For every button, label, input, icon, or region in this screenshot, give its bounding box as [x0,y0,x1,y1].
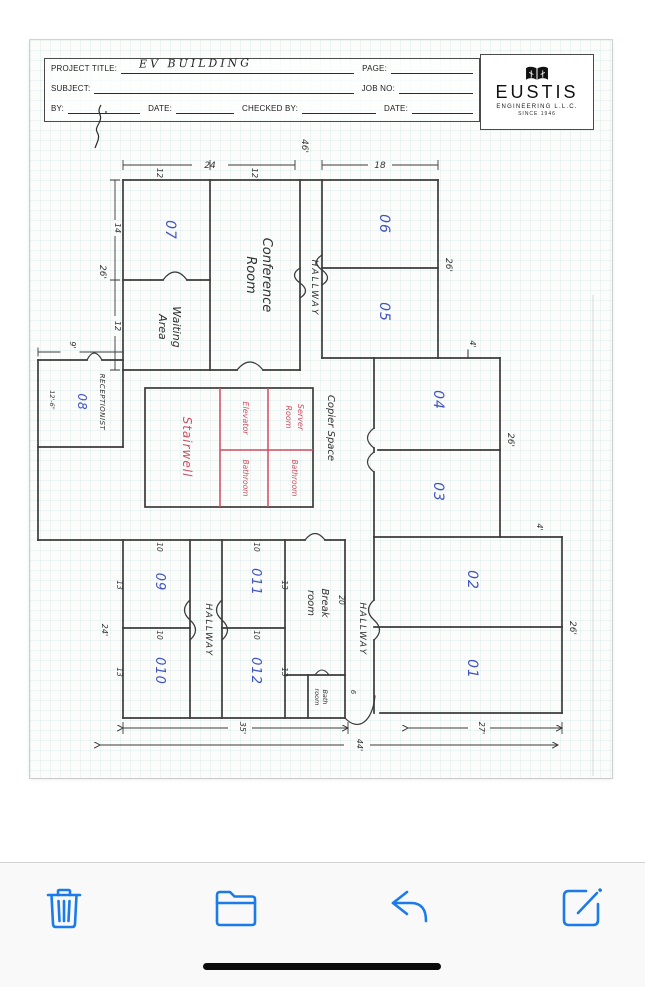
room-011-label: 011 [248,568,263,596]
walls [38,180,562,724]
dim-20: 20 [337,595,346,605]
room-012-label: 012 [248,657,263,685]
dim-13b: 13 [115,667,124,677]
dim-4a: 4' [468,340,477,347]
conference-room-label-1: Conference [259,238,274,313]
dim-26-left: 26' [97,265,107,279]
document-photo[interactable]: PROJECT TITLE: EV BUILDING PAGE: SUBJECT… [30,40,612,778]
trash-icon [42,883,86,931]
room-06-label: 06 [376,214,392,234]
room-01-label: 01 [464,659,480,679]
conference-room-label-2: Room [243,256,258,294]
bath-room-label-2: room [313,689,321,706]
home-indicator[interactable] [203,963,441,970]
receptionist-label: RECEPTIONIST [98,374,106,431]
toolbar-icons [0,875,645,939]
room-07-label: 07 [162,220,178,240]
hallway-right-label: HALLWAY [357,602,367,655]
dim-13a: 13 [115,580,124,590]
reply-button[interactable] [383,879,435,935]
room-02-label: 02 [464,570,480,590]
dim-12a: 12 [155,168,164,178]
waiting-area-label-1: Waiting [170,306,183,347]
dim-26-0605: 26' [443,258,453,272]
dim-12c: 12 [113,321,122,331]
dim-35: 35' [238,722,247,734]
dim-4b: 4' [535,523,544,530]
ios-document-viewer: { "photo": { "title_block": { "project_t… [0,0,645,986]
markup-button[interactable] [555,879,607,935]
dim-26-0403: 26' [505,433,515,447]
room-05-label: 05 [376,302,392,322]
dim-18: 18 [374,161,386,171]
bath-room-label-1: Bath [321,689,329,704]
room-04-label: 04 [430,390,446,410]
room-09-label: 09 [152,573,167,592]
compose-icon [558,883,604,931]
stairwell-label: Stairwell [180,417,194,478]
dim-14: 14 [113,223,122,233]
hallway-top-label: HALLWAY [309,260,319,317]
reply-icon [385,883,433,931]
dim-13d: 13 [280,667,289,677]
waiting-area-label-2: Area [156,313,169,340]
area-labels: Conference Room Waiting Area HALLWAY REC… [98,238,367,706]
dim-6: 6 [349,690,357,695]
dim-24: 24 [204,161,216,171]
dim-9: 9' [68,341,77,348]
dim-10b: 10 [252,542,261,552]
bathroom-b-label: Bathroom [290,459,299,496]
dim-46: 46' [299,139,309,153]
server-room-label-2: Room [284,405,293,428]
room-08-label: 08 [75,393,89,410]
dim-10a: 10 [155,542,164,552]
dim-12-6: 12'-6" [48,390,56,410]
floor-plan-drawing: 24 12 12 18 46' 14 12 26' 26' 4' 26' 4' … [30,40,612,778]
dim-24ft: 24' [100,624,109,636]
dim-26-0201: 26' [567,621,577,635]
delete-button[interactable] [38,879,90,935]
break-room-label-1: Break [319,588,330,618]
dim-27: 27' [477,722,486,734]
break-room-label-2: room [305,590,316,616]
dim-12b: 12 [250,168,259,178]
dim-10d: 10 [252,630,261,640]
core-labels: Stairwell Elevator Bathroom Server Room … [180,401,305,496]
hallway-left-label: HALLWAY [203,603,213,656]
room-03-label: 03 [430,482,446,502]
room-010-label: 010 [152,657,167,685]
copier-space-label: Copier Space [325,395,336,461]
server-room-label-1: Server [296,404,305,431]
dim-13c: 13 [280,580,289,590]
dim-10c: 10 [155,630,164,640]
dim-44: 44' [355,739,364,751]
folder-icon [213,883,259,931]
elevator-label: Elevator [241,401,250,435]
bathroom-a-label: Bathroom [241,459,250,496]
move-to-folder-button[interactable] [210,879,262,935]
